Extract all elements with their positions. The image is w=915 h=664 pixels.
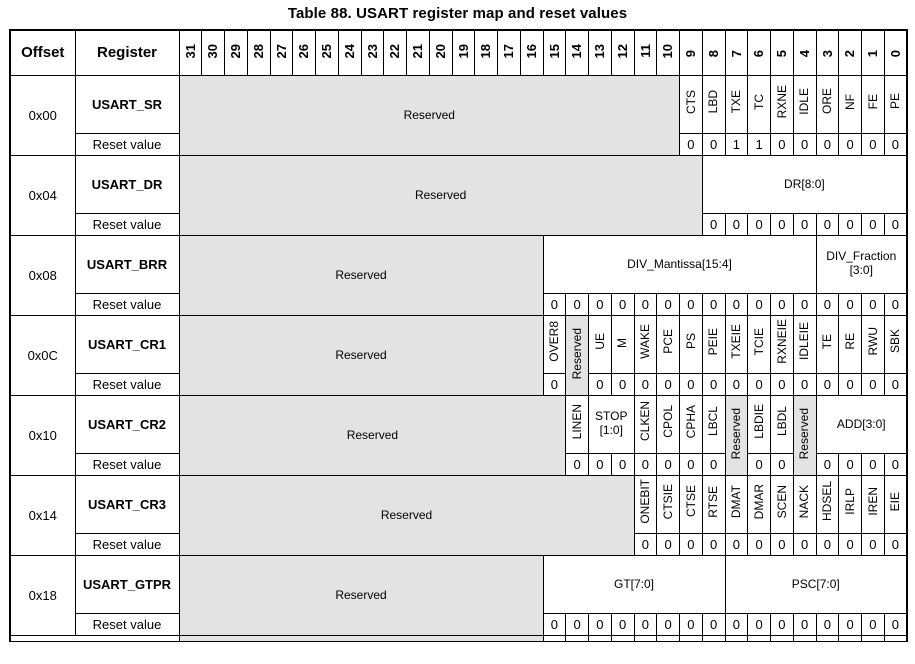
reset-bit-cell: 0 <box>884 133 907 155</box>
bit-field-cell: STOP [1:0] <box>589 395 635 453</box>
bit-number-label: 2 <box>843 50 857 57</box>
bit-number-label: 4 <box>798 50 812 57</box>
offset-cell: 0x04 <box>10 155 75 235</box>
reset-bit-cell: 0 <box>702 453 725 475</box>
reset-bit-cell: 0 <box>611 613 634 635</box>
field-label: IREN <box>867 487 880 516</box>
field-label: WAKE <box>639 324 652 359</box>
bit-number-label: 5 <box>775 50 789 57</box>
field-label: Reserved <box>380 508 433 522</box>
cutoff-cell <box>839 635 862 641</box>
field-label: PE <box>889 93 902 109</box>
bit-header-cell: 13 <box>589 30 612 75</box>
reset-bit-cell: 0 <box>862 533 885 555</box>
reset-bit-cell: 0 <box>793 293 816 315</box>
bit-number-label: 10 <box>661 44 675 58</box>
reserved-cell: Reserved <box>179 155 702 235</box>
field-label: PCE <box>662 329 675 354</box>
offset-cell: 0x18 <box>10 555 75 635</box>
reset-bit-cell: 0 <box>680 613 703 635</box>
register-name-cell: USART_GTPR <box>75 555 179 613</box>
bit-header-cell: 26 <box>293 30 316 75</box>
reset-bit-cell: 0 <box>680 133 703 155</box>
register-name-cell: USART_CR2 <box>75 395 179 453</box>
reset-bit-cell: 0 <box>862 373 885 395</box>
reset-bit-cell: 0 <box>657 533 680 555</box>
reset-bit-cell: 0 <box>816 533 839 555</box>
field-label: TCIE <box>753 328 766 355</box>
bit-field-cell: DIV_Fraction [3:0] <box>816 235 907 293</box>
reset-bit-cell: 0 <box>771 373 794 395</box>
bit-number-label: 12 <box>616 44 630 58</box>
field-label: TXEIE <box>730 324 743 359</box>
field-label: LBDIE <box>753 404 766 439</box>
bit-field-cell: CLKEN <box>634 395 657 453</box>
bit-field-cell: CTSIE <box>657 475 680 533</box>
bit-field-cell: TE <box>816 315 839 373</box>
bit-field-cell: SCEN <box>771 475 794 533</box>
reset-bit-cell: 0 <box>771 213 794 235</box>
bit-field-cell: UE <box>589 315 612 373</box>
reset-bit-cell: 0 <box>657 613 680 635</box>
reset-bit-cell: 0 <box>634 613 657 635</box>
register-name-cell: USART_BRR <box>75 235 179 293</box>
bit-header-cell: 2 <box>839 30 862 75</box>
field-label: ORE <box>821 88 834 114</box>
register-name-cell: USART_CR3 <box>75 475 179 533</box>
reset-bit-cell: 0 <box>702 373 725 395</box>
offset-header-cell: Offset <box>10 30 75 75</box>
field-label: CTSIE <box>662 484 675 519</box>
field-label: CTSE <box>685 485 698 517</box>
bit-field-cell: PE <box>884 75 907 133</box>
offset-cell: 0x08 <box>10 235 75 315</box>
bit-number-label: 3 <box>821 50 835 57</box>
reset-bit-cell: 0 <box>543 613 566 635</box>
reset-bit-cell: 0 <box>884 533 907 555</box>
reserved-cell: Reserved <box>179 75 680 155</box>
bit-header-cell: 10 <box>657 30 680 75</box>
reset-bit-cell: 0 <box>839 453 862 475</box>
reset-bit-cell: 0 <box>793 213 816 235</box>
field-label: Reserved <box>730 408 743 459</box>
reset-bit-cell: 0 <box>748 293 771 315</box>
reset-bit-cell: 0 <box>702 213 725 235</box>
bit-field-cell: RXNE <box>771 75 794 133</box>
field-label: PSC[7:0] <box>791 577 841 591</box>
bit-field-cell: CTS <box>680 75 703 133</box>
reset-bit-cell: 0 <box>839 213 862 235</box>
reset-bit-cell: 0 <box>862 453 885 475</box>
bit-header-cell: 21 <box>407 30 430 75</box>
field-label: DMAT <box>730 485 743 518</box>
reset-bit-cell: 0 <box>884 453 907 475</box>
reset-bit-cell: 0 <box>816 453 839 475</box>
reset-bit-cell: 0 <box>884 613 907 635</box>
field-label: RWU <box>867 327 880 355</box>
bit-field-cell: CPOL <box>657 395 680 453</box>
cutoff-cell <box>702 635 725 641</box>
field-label: LBCL <box>707 406 720 436</box>
bit-header-cell: 5 <box>771 30 794 75</box>
reset-bit-cell: 0 <box>702 613 725 635</box>
field-label: FE <box>867 94 880 109</box>
bit-field-cell: DMAT <box>725 475 748 533</box>
reset-bit-cell: 0 <box>816 373 839 395</box>
bit-field-cell: RTSE <box>702 475 725 533</box>
reset-bit-cell: 0 <box>611 453 634 475</box>
reset-value-label-cell: Reset value <box>75 613 179 635</box>
bit-field-cell: HDSEL <box>816 475 839 533</box>
bit-header-cell: 0 <box>884 30 907 75</box>
reset-bit-cell: 0 <box>771 533 794 555</box>
field-label: Reserved <box>334 588 387 602</box>
field-label: SCEN <box>776 485 789 518</box>
register-name-cell: USART_CR1 <box>75 315 179 373</box>
reset-bit-cell: 0 <box>771 133 794 155</box>
field-label: HDSEL <box>821 481 834 521</box>
reserved-cell: Reserved <box>179 395 566 475</box>
field-label: Reserved <box>403 108 456 122</box>
field-label: RTSE <box>707 486 720 518</box>
field-label: NF <box>844 94 857 110</box>
reset-bit-cell: 0 <box>566 613 589 635</box>
field-label: CPHA <box>685 405 698 438</box>
reset-bit-cell: 0 <box>589 613 612 635</box>
cutoff-reserved-cell <box>179 635 543 641</box>
field-label: PS <box>685 333 698 349</box>
bit-field-cell: ORE <box>816 75 839 133</box>
bit-header-cell: 29 <box>225 30 248 75</box>
bit-number-label: 19 <box>457 44 471 58</box>
reset-bit-cell: 0 <box>839 613 862 635</box>
cutoff-cell <box>657 635 680 641</box>
reset-bit-cell: 0 <box>862 133 885 155</box>
reset-bit-cell: 0 <box>771 613 794 635</box>
bit-header-cell: 8 <box>702 30 725 75</box>
field-label: IDLEIE <box>798 322 811 360</box>
bit-field-cell: FE <box>862 75 885 133</box>
reset-bit-cell: 0 <box>657 373 680 395</box>
cutoff-cell <box>566 635 589 641</box>
reset-bit-cell: 0 <box>862 613 885 635</box>
field-label: PEIE <box>707 328 720 355</box>
bit-header-cell: 7 <box>725 30 748 75</box>
bit-number-label: 18 <box>479 44 493 58</box>
cutoff-cell <box>884 635 907 641</box>
field-label: TE <box>821 334 834 349</box>
field-label: M <box>616 338 629 348</box>
reset-bit-cell: 0 <box>725 293 748 315</box>
bit-number-label: 15 <box>548 44 562 58</box>
reset-bit-cell: 0 <box>634 373 657 395</box>
reset-value-label-cell: Reset value <box>75 133 179 155</box>
bit-field-cell: LBCL <box>702 395 725 453</box>
bit-field-cell: PS <box>680 315 703 373</box>
bit-field-cell: RE <box>839 315 862 373</box>
register-header-cell: Register <box>75 30 179 75</box>
reset-bit-cell: 0 <box>748 213 771 235</box>
bit-field-cell: IRLP <box>839 475 862 533</box>
field-label: ONEBIT <box>639 479 652 524</box>
bit-field-cell: ONEBIT <box>634 475 657 533</box>
bit-number-label: 25 <box>320 44 334 58</box>
field-label: TC <box>753 94 766 110</box>
field-label: EIE <box>889 492 902 511</box>
reserved-cell: Reserved <box>566 315 589 395</box>
reset-bit-cell: 0 <box>725 213 748 235</box>
bit-number-label: 16 <box>525 44 539 58</box>
bit-field-cell: NF <box>839 75 862 133</box>
bit-field-cell: TC <box>748 75 771 133</box>
reset-bit-cell: 0 <box>839 133 862 155</box>
offset-cell: 0x0C <box>10 315 75 395</box>
bit-number-label: 0 <box>889 50 903 57</box>
reset-value-label-cell: Reset value <box>75 373 179 395</box>
bit-number-label: 29 <box>229 44 243 58</box>
reset-bit-cell: 0 <box>657 293 680 315</box>
cutoff-cell <box>611 635 634 641</box>
reset-value-label-cell: Reset value <box>75 213 179 235</box>
bit-number-label: 20 <box>434 44 448 58</box>
offset-cell: 0x00 <box>10 75 75 155</box>
reset-bit-cell: 0 <box>793 133 816 155</box>
reset-value-label-cell: Reset value <box>75 533 179 555</box>
reset-bit-cell: 0 <box>839 373 862 395</box>
bit-header-cell: 19 <box>452 30 475 75</box>
reset-bit-cell: 1 <box>725 133 748 155</box>
bit-field-cell: IDLE <box>793 75 816 133</box>
bit-number-label: 13 <box>593 44 607 58</box>
reset-bit-cell: 0 <box>680 533 703 555</box>
bit-header-cell: 3 <box>816 30 839 75</box>
field-label: DR[8:0] <box>783 177 826 191</box>
bit-field-cell: RWU <box>862 315 885 373</box>
reset-bit-cell: 0 <box>589 293 612 315</box>
reset-bit-cell: 0 <box>634 293 657 315</box>
reset-bit-cell: 0 <box>816 213 839 235</box>
bit-field-cell: IREN <box>862 475 885 533</box>
bit-number-label: 22 <box>388 44 402 58</box>
bit-header-cell: 31 <box>179 30 202 75</box>
reset-bit-cell: 0 <box>680 293 703 315</box>
bit-header-cell: 14 <box>566 30 589 75</box>
reset-bit-cell: 0 <box>543 373 566 395</box>
reset-bit-cell: 0 <box>793 533 816 555</box>
reserved-cell: Reserved <box>179 475 634 555</box>
bit-header-cell: 11 <box>634 30 657 75</box>
field-label: Reserved <box>346 428 399 442</box>
bit-field-cell: NACK <box>793 475 816 533</box>
register-map-table: OffsetRegister31302928272625242322212019… <box>9 29 908 642</box>
bit-field-cell: LBDIE <box>748 395 771 453</box>
reserved-cell: Reserved <box>179 555 543 635</box>
field-label: DIV_Mantissa[15:4] <box>626 257 733 271</box>
cutoff-cell <box>10 635 179 641</box>
reserved-cell: Reserved <box>179 235 543 315</box>
bit-field-cell: SBK <box>884 315 907 373</box>
bit-field-cell: LINEN <box>566 395 589 453</box>
field-label: Reserved <box>798 408 811 459</box>
bit-number-label: 21 <box>411 44 425 58</box>
bit-header-cell: 6 <box>748 30 771 75</box>
register-name-cell: USART_SR <box>75 75 179 133</box>
bit-header-cell: 1 <box>862 30 885 75</box>
field-label: CLKEN <box>639 401 652 441</box>
reset-bit-cell: 0 <box>771 453 794 475</box>
bit-field-cell: TXEIE <box>725 315 748 373</box>
reset-bit-cell: 0 <box>725 373 748 395</box>
field-label: LINEN <box>571 404 584 439</box>
reset-bit-cell: 0 <box>611 293 634 315</box>
field-label: DIV_Fraction [3:0] <box>817 249 907 277</box>
reset-bit-cell: 0 <box>680 453 703 475</box>
offset-cell: 0x14 <box>10 475 75 555</box>
bit-number-label: 9 <box>684 50 698 57</box>
bit-number-label: 7 <box>730 50 744 57</box>
field-label: IDLE <box>798 88 811 115</box>
reset-bit-cell: 0 <box>793 613 816 635</box>
bit-field-cell: GT[7:0] <box>543 555 725 613</box>
reset-value-label-cell: Reset value <box>75 453 179 475</box>
field-label: Reserved <box>334 268 387 282</box>
reset-bit-cell: 0 <box>611 373 634 395</box>
bit-field-cell: DMAR <box>748 475 771 533</box>
bit-field-cell: EIE <box>884 475 907 533</box>
reset-bit-cell: 0 <box>862 293 885 315</box>
bit-number-label: 30 <box>206 44 220 58</box>
bit-header-cell: 12 <box>611 30 634 75</box>
cutoff-cell <box>748 635 771 641</box>
bit-header-cell: 28 <box>247 30 270 75</box>
offset-cell: 0x10 <box>10 395 75 475</box>
bit-field-cell: TXE <box>725 75 748 133</box>
field-label: LBD <box>707 90 720 113</box>
cutoff-cell <box>862 635 885 641</box>
bit-field-cell: DIV_Mantissa[15:4] <box>543 235 816 293</box>
reset-bit-cell: 0 <box>839 293 862 315</box>
field-label: LBDL <box>776 406 789 436</box>
field-label: RE <box>844 333 857 350</box>
field-label: UE <box>594 333 607 350</box>
bit-number-label: 14 <box>570 44 584 58</box>
bit-number-label: 11 <box>639 44 653 58</box>
bit-header-cell: 20 <box>429 30 452 75</box>
reset-bit-cell: 0 <box>634 533 657 555</box>
reset-bit-cell: 1 <box>748 133 771 155</box>
bit-number-label: 6 <box>752 50 766 57</box>
reset-bit-cell: 0 <box>884 293 907 315</box>
bit-field-cell: LBDL <box>771 395 794 453</box>
reset-bit-cell: 0 <box>566 453 589 475</box>
reset-bit-cell: 0 <box>725 533 748 555</box>
bit-field-cell: CPHA <box>680 395 703 453</box>
reset-bit-cell: 0 <box>566 293 589 315</box>
bit-field-cell: PCE <box>657 315 680 373</box>
bit-field-cell: OVER8 <box>543 315 566 373</box>
bit-number-label: 23 <box>366 44 380 58</box>
reset-value-label-cell: Reset value <box>75 293 179 315</box>
field-label: NACK <box>798 485 811 518</box>
bit-field-cell: IDLEIE <box>793 315 816 373</box>
bit-header-cell: 9 <box>680 30 703 75</box>
register-name-cell: USART_DR <box>75 155 179 213</box>
bit-header-cell: 15 <box>543 30 566 75</box>
bit-number-label: 8 <box>707 50 721 57</box>
field-label: TXE <box>730 90 743 113</box>
reset-bit-cell: 0 <box>816 133 839 155</box>
bit-header-cell: 27 <box>270 30 293 75</box>
cutoff-cell <box>589 635 612 641</box>
cutoff-cell <box>793 635 816 641</box>
field-label: CTS <box>685 90 698 114</box>
bit-field-cell: CTSE <box>680 475 703 533</box>
bit-field-cell: LBD <box>702 75 725 133</box>
bit-header-cell: 16 <box>520 30 543 75</box>
bit-number-label: 26 <box>297 44 311 58</box>
bit-number-label: 24 <box>343 44 357 58</box>
bit-header-cell: 17 <box>498 30 521 75</box>
reset-bit-cell: 0 <box>748 453 771 475</box>
reset-bit-cell: 0 <box>725 613 748 635</box>
field-label: STOP [1:0] <box>589 409 634 437</box>
field-label: SBK <box>889 329 902 353</box>
bit-field-cell: M <box>611 315 634 373</box>
table-title: Table 88. USART register map and reset v… <box>0 5 915 22</box>
reset-bit-cell: 0 <box>793 373 816 395</box>
bit-header-cell: 22 <box>384 30 407 75</box>
bit-field-cell: TCIE <box>748 315 771 373</box>
bit-header-cell: 23 <box>361 30 384 75</box>
bit-number-label: 27 <box>275 44 289 58</box>
field-label: CPOL <box>662 405 675 438</box>
bit-header-cell: 25 <box>316 30 339 75</box>
bit-field-cell: RXNEIE <box>771 315 794 373</box>
field-label: Reserved <box>571 328 584 379</box>
reset-bit-cell: 0 <box>589 373 612 395</box>
bit-number-label: 28 <box>252 44 266 58</box>
bit-field-cell: DR[8:0] <box>702 155 907 213</box>
reset-bit-cell: 0 <box>771 293 794 315</box>
reset-bit-cell: 0 <box>748 533 771 555</box>
reset-bit-cell: 0 <box>748 373 771 395</box>
field-label: ADD[3:0] <box>836 417 887 431</box>
reset-bit-cell: 0 <box>839 533 862 555</box>
bit-header-cell: 18 <box>475 30 498 75</box>
cutoff-cell <box>725 635 748 641</box>
reset-bit-cell: 0 <box>589 453 612 475</box>
bit-number-label: 17 <box>502 44 516 58</box>
reserved-cell: Reserved <box>179 315 543 395</box>
reset-bit-cell: 0 <box>702 133 725 155</box>
field-label: RXNEIE <box>776 319 789 364</box>
field-label: Reserved <box>414 188 467 202</box>
reset-bit-cell: 0 <box>702 533 725 555</box>
cutoff-cell <box>816 635 839 641</box>
document-page: { "title": "Table 88. USART register map… <box>0 0 915 664</box>
reset-bit-cell: 0 <box>816 613 839 635</box>
field-label: RXNE <box>776 85 789 118</box>
reset-bit-cell: 0 <box>702 293 725 315</box>
cutoff-cell <box>771 635 794 641</box>
reserved-cell: Reserved <box>725 395 748 475</box>
cutoff-cell <box>680 635 703 641</box>
bit-header-cell: 4 <box>793 30 816 75</box>
field-label: DMAR <box>753 484 766 519</box>
reset-bit-cell: 0 <box>748 613 771 635</box>
field-label: OVER8 <box>548 321 561 362</box>
reset-bit-cell: 0 <box>816 293 839 315</box>
